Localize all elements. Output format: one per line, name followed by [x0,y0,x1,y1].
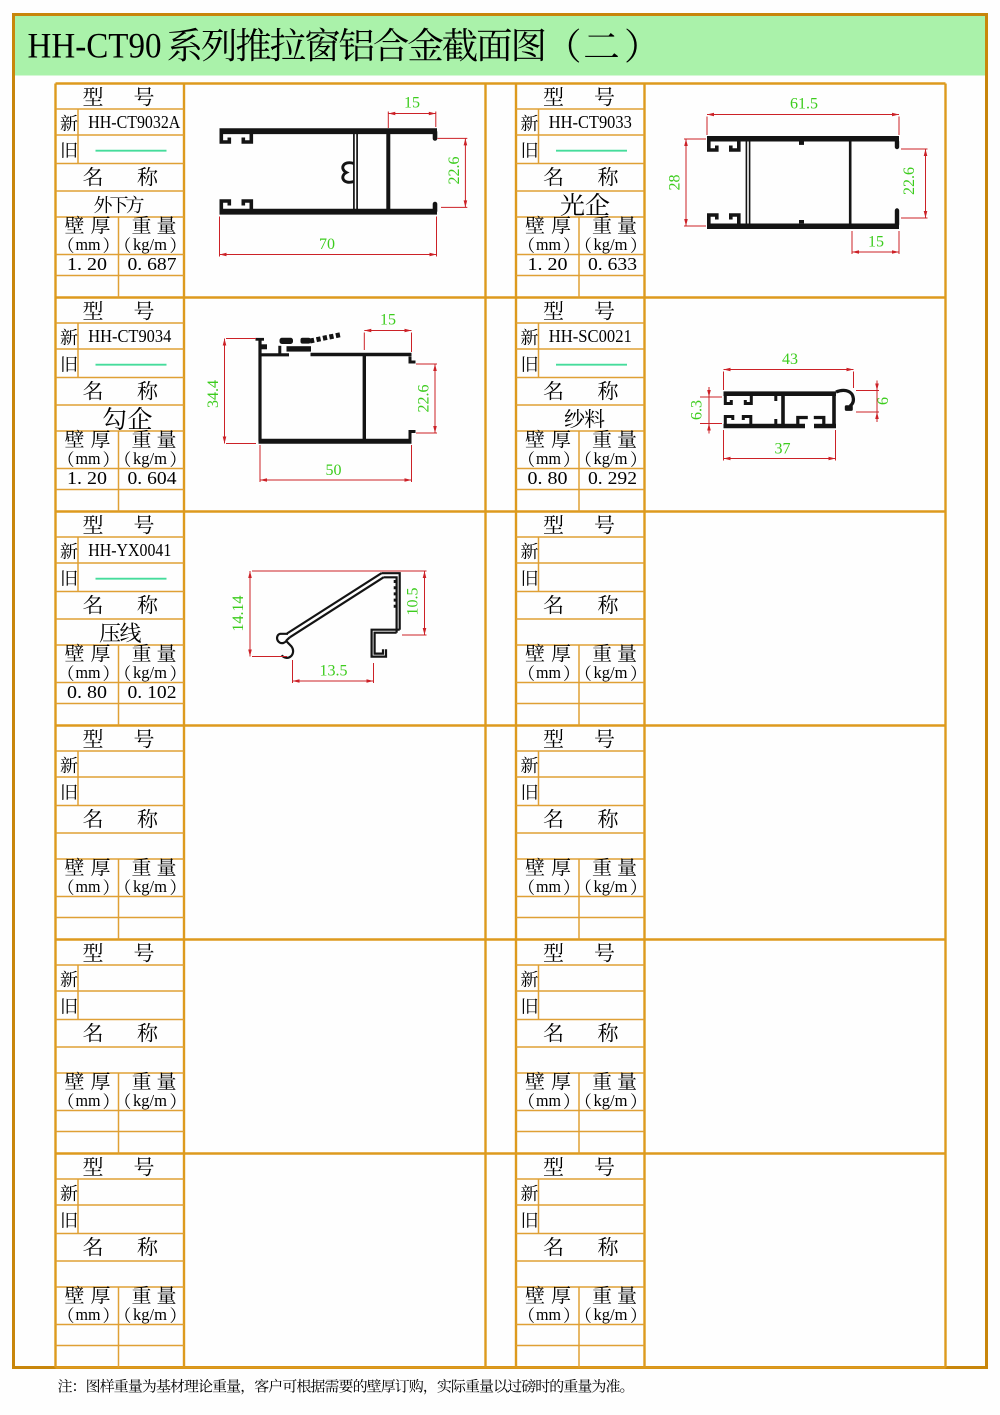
svg-text:kg/m: kg/m [594,877,628,896]
svg-text:22.6: 22.6 [446,157,463,185]
svg-text:kg/m: kg/m [133,449,167,468]
svg-text:mm: mm [536,235,561,254]
svg-text:43: 43 [782,351,798,368]
svg-text:kg/m: kg/m [133,877,167,896]
svg-text:kg/m: kg/m [594,1305,628,1324]
svg-text:mm: mm [536,1305,561,1324]
svg-text:HH-YX0041: HH-YX0041 [88,540,171,560]
svg-text:mm: mm [536,663,561,682]
svg-text:6.3: 6.3 [689,400,706,420]
svg-text:HH-CT9033: HH-CT9033 [549,112,632,132]
svg-text:37: 37 [775,441,791,458]
svg-text:15: 15 [868,234,884,251]
svg-text:kg/m: kg/m [133,235,167,254]
svg-text:kg/m: kg/m [594,235,628,254]
svg-text:mm: mm [76,1091,101,1110]
svg-text:kg/m: kg/m [133,1305,167,1324]
svg-text:mm: mm [536,877,561,896]
svg-text:mm: mm [536,1091,561,1110]
svg-text:13.5: 13.5 [320,663,348,680]
svg-text:50: 50 [326,462,342,479]
svg-text:HH-SC0021: HH-SC0021 [549,326,632,346]
svg-text:0. 292: 0. 292 [588,468,637,488]
svg-text:15: 15 [380,312,396,329]
svg-text:0. 687: 0. 687 [128,254,177,274]
svg-text:mm: mm [76,449,101,468]
svg-text:34.4: 34.4 [205,380,222,408]
svg-text:70: 70 [319,236,335,253]
svg-text:mm: mm [536,449,561,468]
svg-text:kg/m: kg/m [133,1091,167,1110]
svg-text:0. 633: 0. 633 [588,254,637,274]
svg-text:0. 80: 0. 80 [528,468,568,488]
svg-text:22.6: 22.6 [901,167,918,195]
svg-text:1. 20: 1. 20 [67,254,107,274]
svg-text:mm: mm [76,235,101,254]
svg-text:15: 15 [404,95,420,112]
svg-text:kg/m: kg/m [594,1091,628,1110]
svg-text:0. 80: 0. 80 [67,682,107,702]
svg-text:22.6: 22.6 [416,385,433,413]
svg-text:10.5: 10.5 [405,588,422,616]
svg-text:mm: mm [76,1305,101,1324]
svg-text:HH-CT9032A: HH-CT9032A [88,112,180,132]
svg-text:HH-CT9034: HH-CT9034 [88,326,171,346]
svg-text:kg/m: kg/m [594,663,628,682]
svg-text:kg/m: kg/m [594,449,628,468]
svg-text:14.14: 14.14 [230,596,247,632]
svg-text:mm: mm [76,877,101,896]
svg-text:kg/m: kg/m [133,663,167,682]
svg-text:0. 102: 0. 102 [128,682,177,702]
svg-text:mm: mm [76,663,101,682]
svg-text:28: 28 [667,175,684,191]
svg-text:61.5: 61.5 [790,96,818,113]
svg-text:6: 6 [875,397,892,405]
svg-text:HH-CT90: HH-CT90 [28,26,162,66]
svg-text:0. 604: 0. 604 [128,468,177,488]
svg-text:1. 20: 1. 20 [67,468,107,488]
svg-text:1. 20: 1. 20 [528,254,568,274]
